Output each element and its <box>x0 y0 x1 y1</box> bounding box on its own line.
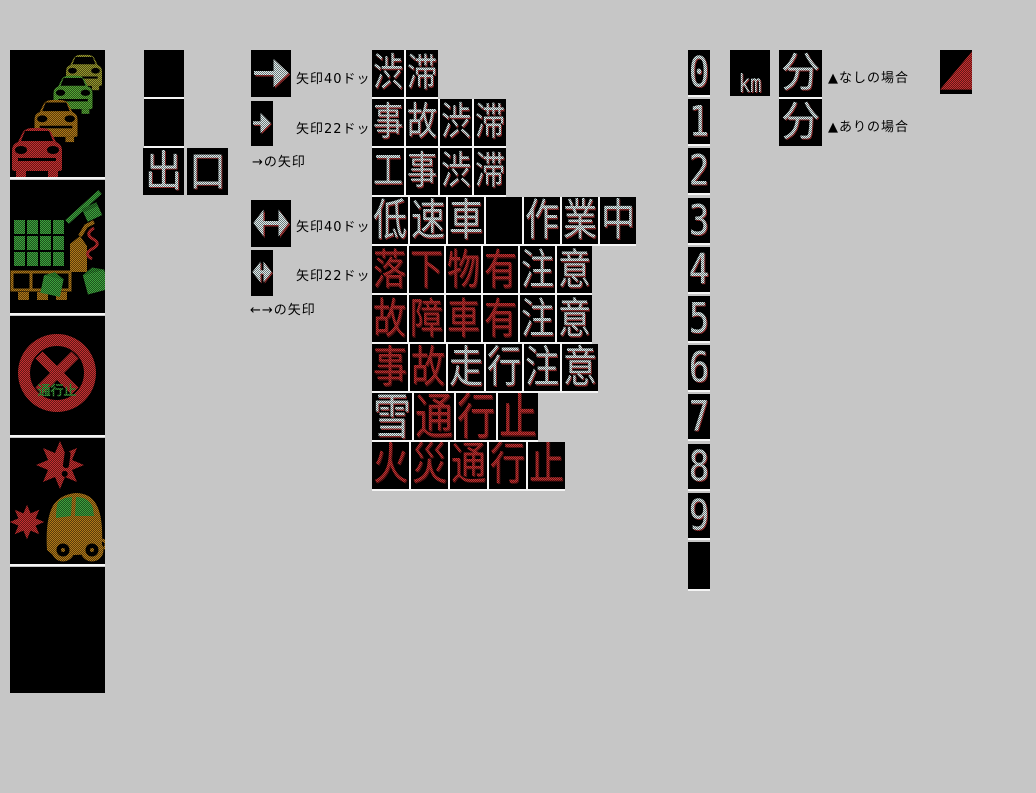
led-char: 低 <box>373 199 407 243</box>
arrow-double-40dot-cell <box>251 200 291 247</box>
led-char-cell: 障 <box>409 295 444 342</box>
led-char-cell: 事 <box>372 344 408 391</box>
minutes-unit-cell: 分 <box>779 99 822 146</box>
led-char-cell: 意 <box>562 344 598 391</box>
arrow-right-22dot-cell <box>251 101 273 146</box>
exit-char-cell: 出 <box>143 148 184 195</box>
led-char: 行 <box>487 346 521 390</box>
led-char-cell: 滞 <box>474 99 506 146</box>
led-char-cell: 作 <box>524 197 560 244</box>
led-char-cell: 行 <box>486 344 522 391</box>
arrow-right-caption: →の矢印 <box>252 151 306 170</box>
led-digit-char: 0 <box>689 52 709 93</box>
led-char-cell: 滞 <box>474 148 506 195</box>
accident-pictogram <box>10 438 105 566</box>
led-char-cell: 中 <box>600 197 636 244</box>
led-char-cell: 通 <box>450 442 487 489</box>
led-char-cell: 事 <box>406 148 438 195</box>
led-char: 行 <box>457 393 495 440</box>
led-char-cell: 渋 <box>372 50 404 97</box>
led-char-cell: 走 <box>448 344 484 391</box>
led-char-cell: 意 <box>557 246 592 293</box>
led-char: 渋 <box>441 103 471 141</box>
led-char-cell: 災 <box>411 442 448 489</box>
led-char: 注 <box>525 346 559 390</box>
led-digit-2: 2 <box>688 148 710 195</box>
led-char: 注 <box>521 297 554 339</box>
led-digit-char: 6 <box>689 347 709 388</box>
led-message-row-2: 事故渋滞 <box>372 99 506 148</box>
led-char: 注 <box>521 248 554 290</box>
led-char: 下 <box>410 248 443 290</box>
led-sign-sprite-sheet: 通行止 出 <box>0 0 1036 793</box>
arrow-right-40dot-cell <box>251 50 291 97</box>
led-char: 速 <box>411 199 445 243</box>
led-char-cell: 車 <box>446 295 481 342</box>
falling-cargo-truck-icon <box>10 180 105 313</box>
led-char: 故 <box>373 297 406 339</box>
led-digit-9: 9 <box>688 493 710 540</box>
led-digit-char: 1 <box>689 101 709 142</box>
led-char-cell: 物 <box>446 246 481 293</box>
led-char-cell: 有 <box>483 295 518 342</box>
led-message-row-5: 落下物有注意 <box>372 246 592 295</box>
led-char: 火 <box>373 443 408 488</box>
led-message-row-6: 故障車有注意 <box>372 295 592 344</box>
led-char: 中 <box>601 199 635 243</box>
km-unit-cell: km <box>730 50 770 96</box>
led-message-row-4: 低速車作業中 <box>372 197 636 246</box>
led-char: 滞 <box>407 54 437 92</box>
exit-char-cell: 口 <box>187 148 228 195</box>
led-message-row-8: 雪通行止 <box>372 393 538 442</box>
led-char-cell: 渋 <box>440 99 472 146</box>
led-char: 通 <box>415 393 453 440</box>
red-triangle-flag-cell <box>940 50 972 94</box>
led-char-cell: 注 <box>520 295 555 342</box>
led-char: 止 <box>529 443 564 488</box>
led-char-cell: 注 <box>520 246 555 293</box>
triangle-absent-caption: ▲なしの場合 <box>828 67 909 86</box>
led-blank-cell <box>144 99 184 148</box>
led-char-cell: 故 <box>372 295 407 342</box>
led-digit-1: 1 <box>688 99 710 146</box>
traffic-jam-icon <box>10 50 105 177</box>
led-char: 落 <box>373 248 406 290</box>
led-char: 事 <box>373 103 403 141</box>
minutes-unit-text: 分 <box>781 53 820 94</box>
led-blank-cell <box>144 50 184 99</box>
led-char: 車 <box>449 199 483 243</box>
triangle-present-caption: ▲ありの場合 <box>828 116 909 135</box>
led-digit-char: 9 <box>689 495 709 536</box>
road-closed-pictogram: 通行止 <box>10 316 105 437</box>
led-digit-5: 5 <box>688 296 710 343</box>
road-closed-text: 通行止 <box>37 383 76 399</box>
red-triangle-icon <box>940 50 972 94</box>
led-char: 故 <box>411 346 445 390</box>
led-char-cell: 渋 <box>440 148 472 195</box>
led-char-cell: 行 <box>456 393 496 440</box>
led-char: 事 <box>407 152 437 190</box>
led-blank-cell <box>688 542 710 591</box>
led-char-cell: 下 <box>409 246 444 293</box>
led-char: 障 <box>410 297 443 339</box>
led-digit-char: 4 <box>689 249 709 290</box>
led-char-cell: 故 <box>410 344 446 391</box>
led-char: 車 <box>447 297 480 339</box>
led-char: 渋 <box>373 54 403 92</box>
led-char: 物 <box>447 248 480 290</box>
led-digit-0: 0 <box>688 50 710 97</box>
arrow-right-icon <box>251 101 273 146</box>
no-entry-icon: 通行止 <box>10 316 105 435</box>
led-char-cell: 通 <box>414 393 454 440</box>
led-char-cell: 業 <box>562 197 598 244</box>
led-char: 有 <box>484 297 517 339</box>
led-char: 意 <box>558 297 591 339</box>
led-char-cell: 車 <box>448 197 484 244</box>
led-digit-6: 6 <box>688 345 710 392</box>
arrow-double-22dot-cell <box>251 250 273 296</box>
arrow-left-right-icon <box>251 200 291 247</box>
led-char-cell: 落 <box>372 246 407 293</box>
accident-car-icon <box>10 438 105 564</box>
led-char-cell: 速 <box>410 197 446 244</box>
blank-led-panel <box>10 567 105 693</box>
arrow-left-right-icon <box>251 250 273 296</box>
led-message-row-1: 渋滞 <box>372 50 438 99</box>
minutes-unit-cell: 分 <box>779 50 822 99</box>
led-char-cell: 行 <box>489 442 526 489</box>
exit-char: 出 <box>145 150 182 193</box>
led-char-cell: 有 <box>483 246 518 293</box>
led-digit-7: 7 <box>688 394 710 441</box>
led-char-cell: 低 <box>372 197 408 244</box>
led-char: 滞 <box>475 103 505 141</box>
arrow-double-caption: ←→の矢印 <box>250 299 316 318</box>
led-char-cell: 滞 <box>406 50 438 97</box>
led-char: 災 <box>412 443 447 488</box>
led-char-cell: 火 <box>372 442 409 489</box>
led-message-row-7: 事故走行注意 <box>372 344 598 393</box>
led-char-cell: 止 <box>498 393 538 440</box>
led-digit-char: 5 <box>689 298 709 339</box>
led-char: 意 <box>558 248 591 290</box>
arrow-right-icon <box>251 50 291 97</box>
led-char: 事 <box>373 346 407 390</box>
led-message-row-9: 火災通行止 <box>372 442 565 491</box>
led-char: 行 <box>490 443 525 488</box>
led-char-cell: 雪 <box>372 393 412 440</box>
led-digit-char: 7 <box>689 396 709 437</box>
traffic-jam-pictogram <box>10 50 105 179</box>
led-char: 渋 <box>441 152 471 190</box>
led-char: 通 <box>451 443 486 488</box>
led-char: 滞 <box>475 152 505 190</box>
led-char-cell: 意 <box>557 295 592 342</box>
led-digit-char: 3 <box>689 200 709 241</box>
led-digit-char: 8 <box>689 446 709 487</box>
led-char: 業 <box>563 199 597 243</box>
led-char: 有 <box>484 248 517 290</box>
led-char: 雪 <box>373 393 411 440</box>
led-char: 故 <box>407 103 437 141</box>
led-char: 走 <box>449 346 483 390</box>
exit-char: 口 <box>189 150 226 193</box>
led-char-cell: 工 <box>372 148 404 195</box>
led-digit-8: 8 <box>688 444 710 491</box>
led-char-cell: 止 <box>528 442 565 489</box>
km-unit-text: km <box>739 71 762 96</box>
led-digit-4: 4 <box>688 247 710 294</box>
led-digit-char: 2 <box>689 150 709 191</box>
led-blank-cell <box>486 197 522 244</box>
minutes-unit-text: 分 <box>781 102 820 143</box>
led-char-cell: 事 <box>372 99 404 146</box>
led-char: 止 <box>499 393 537 440</box>
led-digit-3: 3 <box>688 198 710 245</box>
falling-cargo-pictogram <box>10 180 105 315</box>
led-char-cell: 注 <box>524 344 560 391</box>
led-char: 意 <box>563 346 597 390</box>
led-char: 作 <box>525 199 559 243</box>
led-message-row-3: 工事渋滞 <box>372 148 506 197</box>
led-char-cell: 故 <box>406 99 438 146</box>
led-char: 工 <box>373 152 403 190</box>
